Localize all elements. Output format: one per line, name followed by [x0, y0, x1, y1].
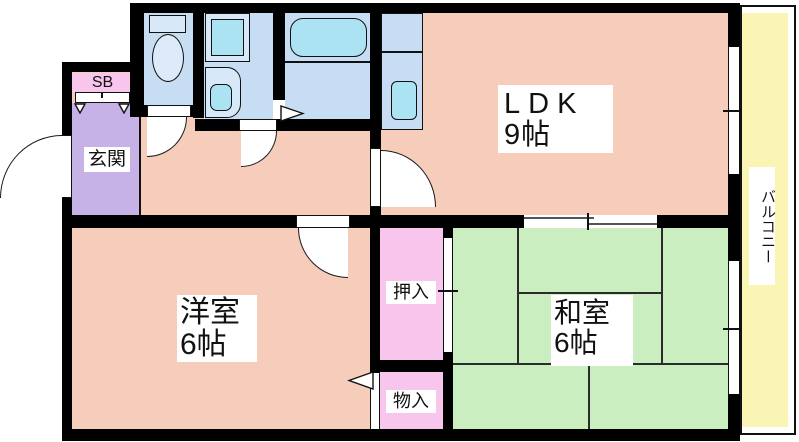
tatami-line	[517, 228, 519, 364]
oshiire-door-tick	[438, 290, 458, 292]
japanese-room-label-name: 和室	[554, 298, 633, 328]
entrance-step-line	[139, 115, 141, 215]
shoe-box: SB	[72, 73, 133, 92]
toilet-door-leaf	[147, 105, 191, 117]
toilet-bowl-fixture	[152, 34, 184, 82]
closet-label: 押入	[386, 281, 436, 304]
floorplan-canvas: SB	[0, 0, 799, 442]
storage-label: 物入	[386, 390, 436, 413]
balcony-label: バルコニー	[749, 167, 775, 285]
western-room-label: 洋室 6帖	[177, 295, 257, 362]
western-room-door-leaf	[296, 215, 350, 228]
wall-closet-washitsu-bottom	[443, 352, 453, 441]
tatami-line	[588, 364, 590, 429]
shoe-box-tick	[101, 93, 103, 98]
ldk-door-leaf	[370, 148, 381, 207]
sliding-door-oshiire	[443, 238, 453, 352]
japanese-room-label: 和室 6帖	[551, 295, 633, 366]
sliding-door-center-tick	[587, 213, 589, 230]
kitchen-sink-fixture	[391, 81, 417, 120]
washbasin-bowl	[211, 19, 244, 56]
entrance-door-arc	[0, 135, 62, 198]
down-arrow-icon	[118, 103, 130, 114]
closet-label-text: 押入	[393, 282, 429, 302]
toilet-tank-fixture	[149, 15, 186, 33]
washroom-door-leaf	[239, 119, 277, 131]
wall-toilet-left	[130, 3, 144, 117]
storage-label-text: 物入	[393, 391, 429, 411]
ldk-label-name: LDK	[504, 89, 613, 120]
japanese-room-label-size: 6帖	[554, 328, 633, 358]
western-room-label-name: 洋室	[180, 297, 257, 329]
wall-entrance-top	[62, 62, 140, 72]
sliding-door-panel-line	[524, 217, 594, 219]
storage-door-arrow	[347, 371, 374, 390]
wall-washroom-bathroom	[273, 3, 285, 101]
balcony-label-text: バルコニー	[759, 189, 776, 264]
tatami-line	[661, 228, 663, 364]
down-arrow-icon	[74, 103, 86, 114]
bathroom-door-arrow	[280, 105, 305, 123]
entrance-label: 玄関	[84, 147, 130, 172]
entrance-label-text: 玄関	[88, 149, 126, 170]
western-room-label-size: 6帖	[180, 329, 257, 361]
vanity-bowl	[210, 84, 232, 111]
wall-top	[130, 3, 740, 13]
wall-oshiire-monoire	[370, 360, 453, 372]
tatami-line	[517, 292, 663, 294]
wall-bottom	[62, 429, 740, 441]
bathtub-edge-line	[285, 61, 370, 63]
wall-left	[62, 62, 72, 441]
shoe-box-label: SB	[92, 74, 113, 91]
kitchen-counter-divider	[381, 51, 423, 53]
bathtub-fixture	[290, 18, 367, 57]
wall-closet-washitsu-top	[443, 228, 453, 238]
sliding-door-panel-line	[587, 223, 657, 225]
ldk-label: LDK 9帖	[498, 85, 613, 153]
wall-toilet-washroom	[193, 3, 204, 118]
ldk-label-size: 9帖	[504, 120, 613, 151]
